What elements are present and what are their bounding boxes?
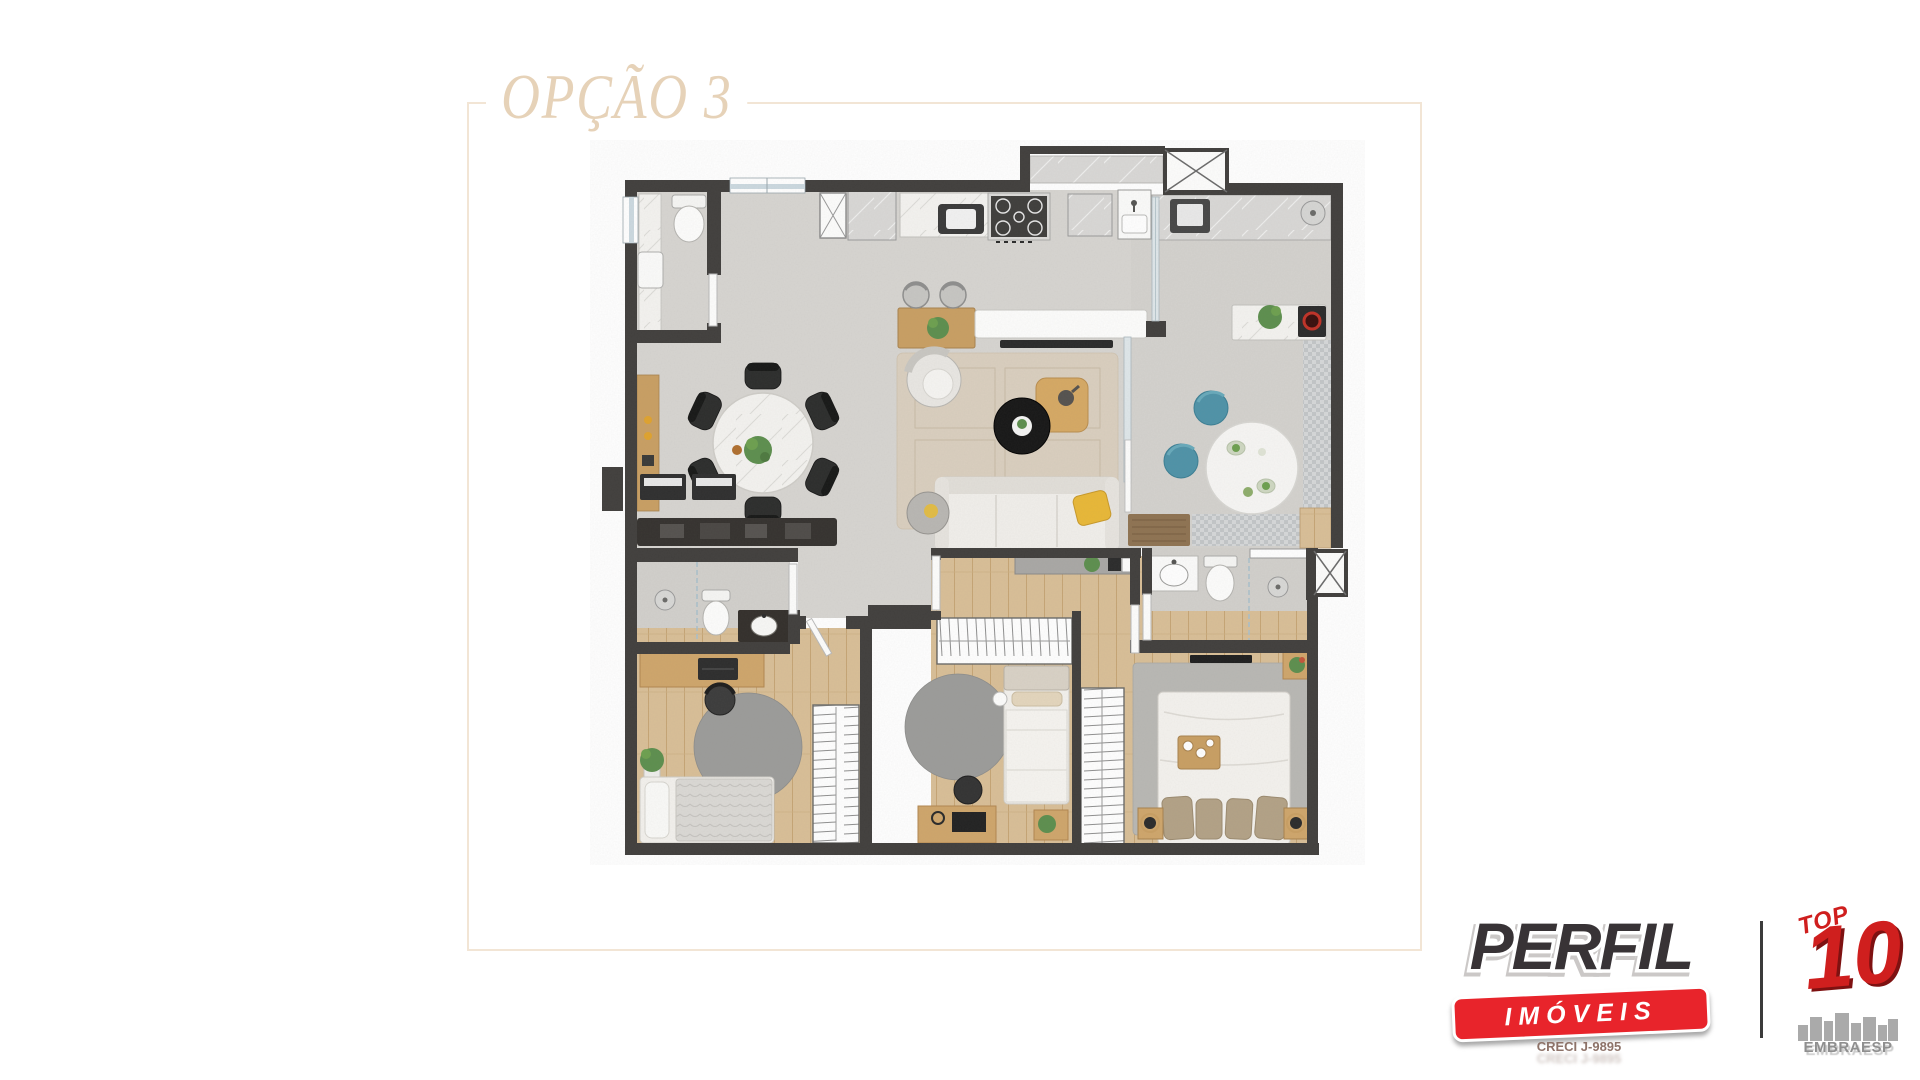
skyline-icon [1796,1011,1900,1041]
embraesp-top10-logo: 10 TOP EMBRAESP [1796,903,1902,1068]
perfil-imoveis-logo: PERFIL PERFIL IMÓVEIS CRECI J-9895 [1450,903,1718,1073]
imoveis-badge: IMÓVEIS [1451,985,1711,1042]
floor-texture-overlay [590,140,1365,865]
perfil-wordmark-text: PERFIL [1470,909,1693,983]
embraesp-name: EMBRAESP [1796,1039,1900,1056]
page-title: OPÇÃO 3 [486,60,748,134]
logo-divider [1760,921,1763,1038]
creci-registration: CRECI J-9895 [1450,1039,1708,1054]
floor-plan [590,140,1365,865]
perfil-wordmark: PERFIL PERFIL [1450,903,1718,995]
page: OPÇÃO 3 [0,0,1920,1080]
